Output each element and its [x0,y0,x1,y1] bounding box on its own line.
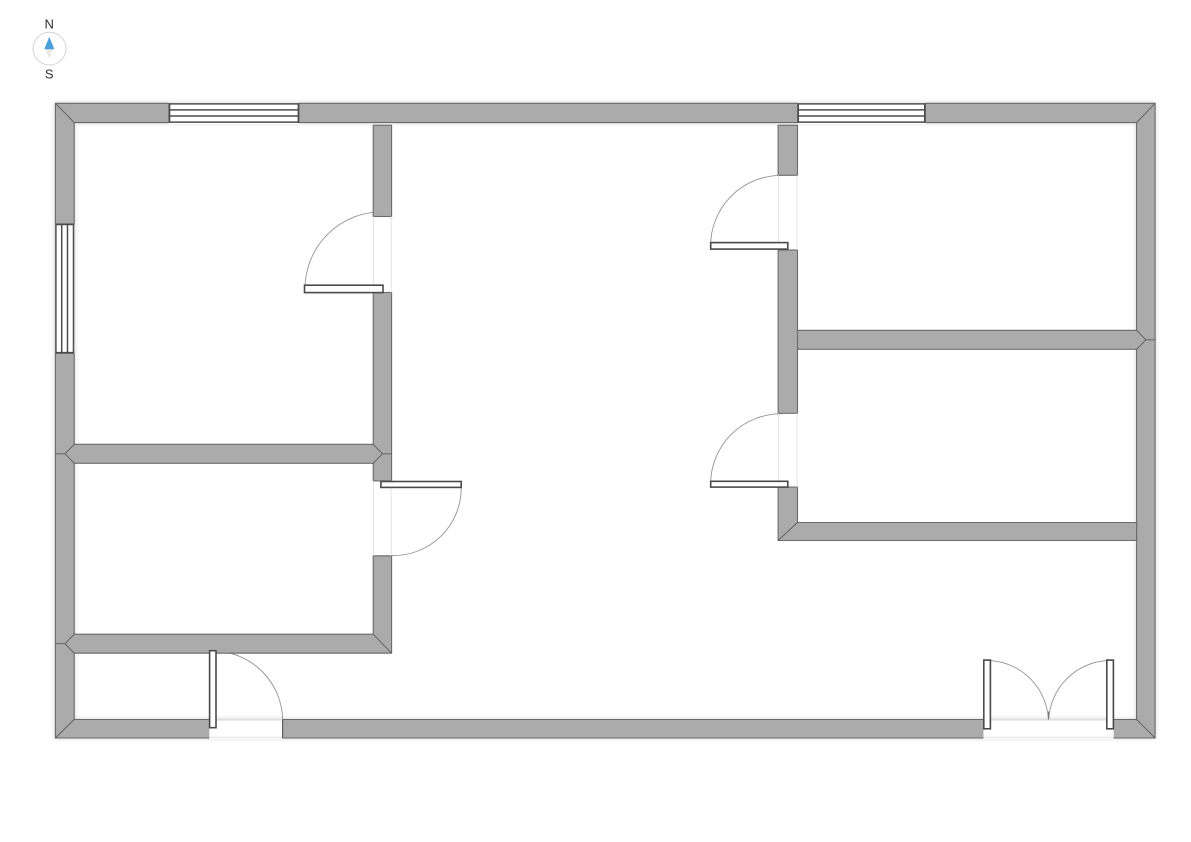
svg-text:N: N [45,16,54,31]
svg-text:S: S [45,67,54,82]
